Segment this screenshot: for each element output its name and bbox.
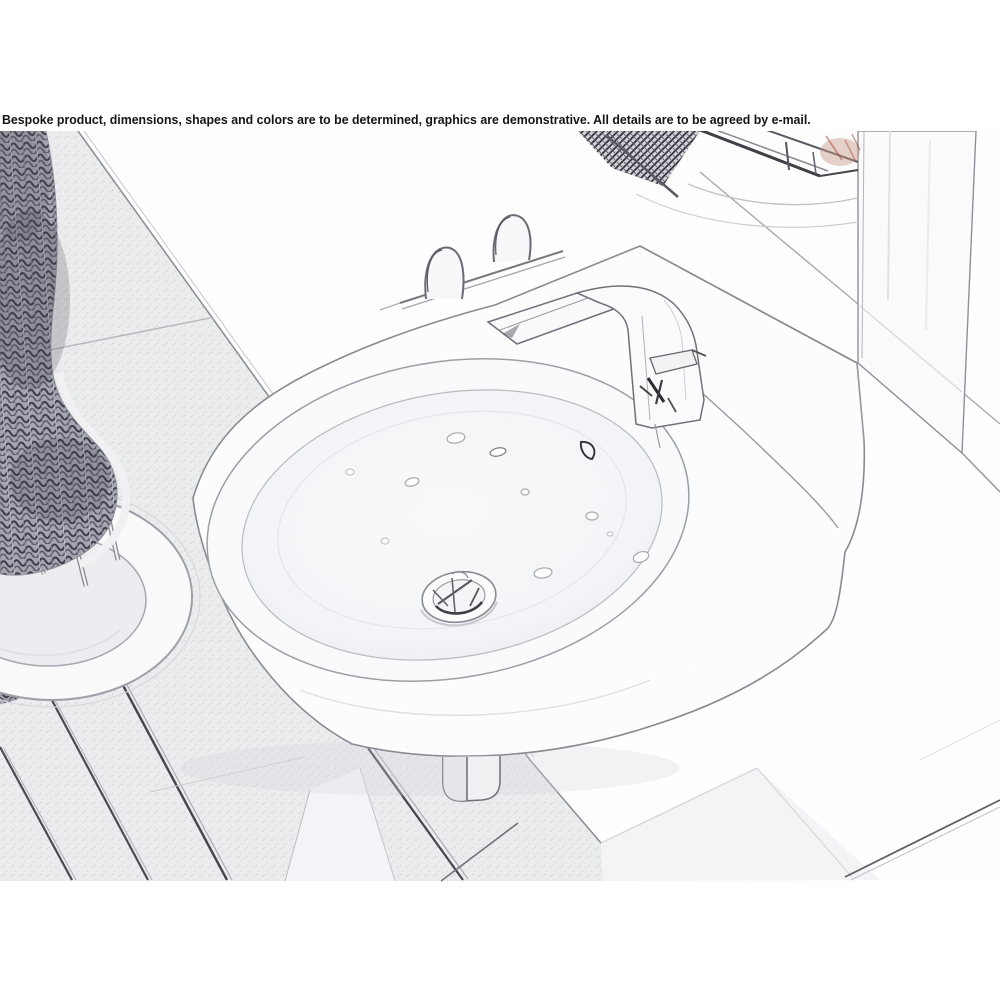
paper-grain (0, 131, 1000, 882)
product-image: Bespoke product, dimensions, shapes and … (0, 0, 1000, 1000)
product-sketch (0, 0, 1000, 1000)
